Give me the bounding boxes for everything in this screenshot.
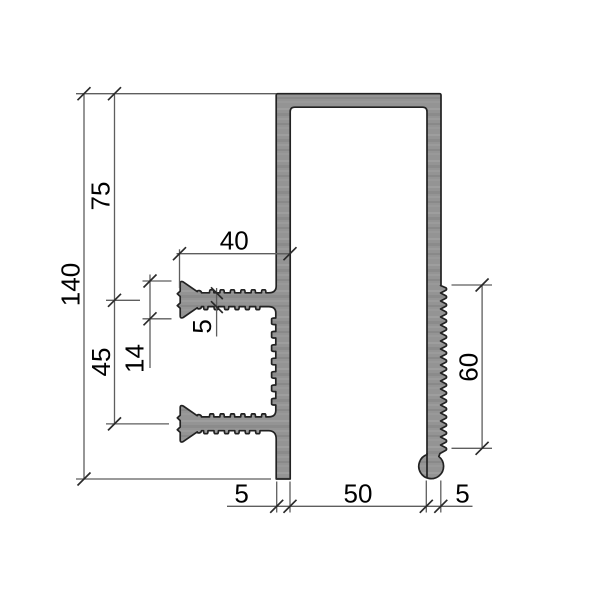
svg-text:140: 140 <box>56 263 86 306</box>
svg-text:40: 40 <box>220 226 249 256</box>
svg-text:50: 50 <box>344 478 373 508</box>
svg-text:75: 75 <box>86 182 116 211</box>
svg-text:14: 14 <box>120 344 150 373</box>
svg-text:5: 5 <box>455 478 469 508</box>
svg-text:5: 5 <box>234 478 248 508</box>
svg-text:60: 60 <box>453 353 483 382</box>
svg-text:5: 5 <box>187 319 217 333</box>
svg-text:45: 45 <box>86 348 116 377</box>
